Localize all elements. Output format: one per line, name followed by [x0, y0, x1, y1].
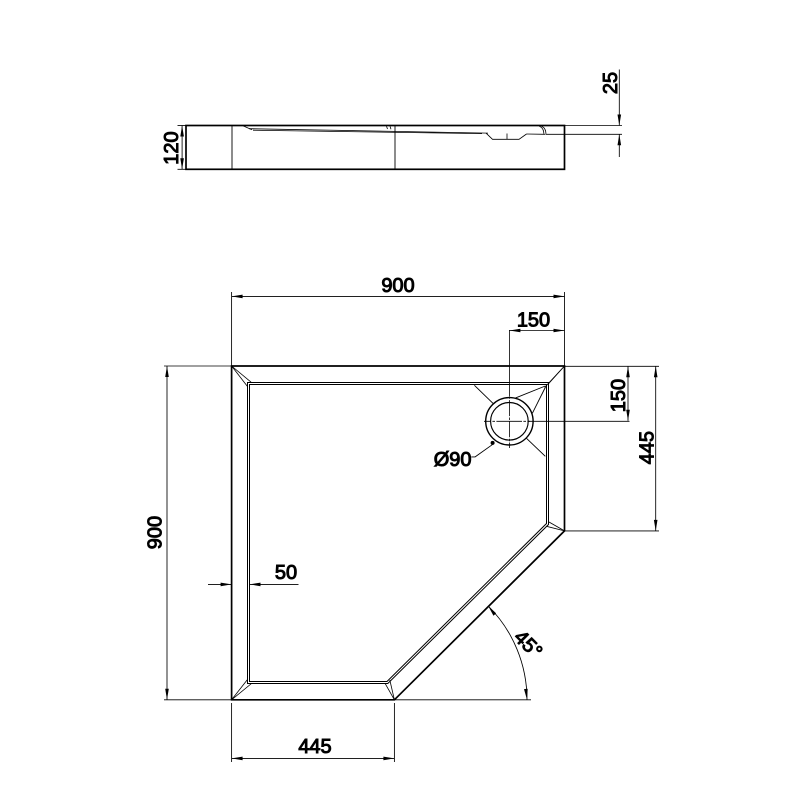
svg-text:120: 120 — [161, 131, 183, 164]
svg-text:Ø90: Ø90 — [434, 449, 472, 471]
svg-text:150: 150 — [517, 310, 550, 332]
svg-text:150: 150 — [608, 379, 630, 412]
svg-text:900: 900 — [381, 275, 414, 297]
svg-text:445: 445 — [298, 736, 331, 758]
svg-text:900: 900 — [144, 516, 166, 549]
svg-text:445: 445 — [637, 431, 659, 464]
svg-text:25: 25 — [600, 72, 622, 94]
svg-text:50: 50 — [275, 562, 297, 584]
